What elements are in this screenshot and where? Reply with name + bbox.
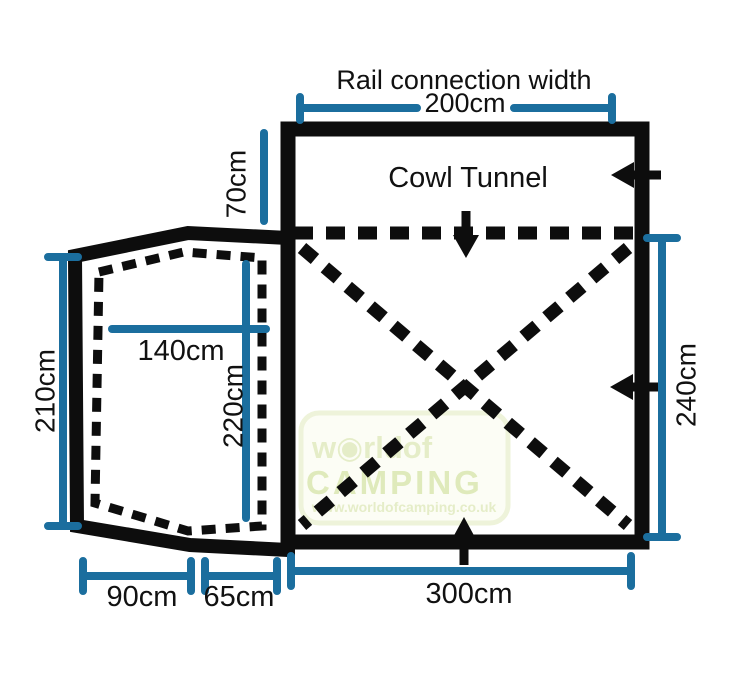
- annexe-base-width-label: 90cm: [107, 581, 178, 613]
- annexe-inner-width-label: 140cm: [137, 335, 224, 367]
- connector-width-label: 65cm: [204, 581, 275, 613]
- rail-connection-width-label: 200cm: [424, 88, 505, 118]
- tunnel-length-label: 70cm: [221, 150, 252, 218]
- annexe-side-height-label: 210cm: [30, 349, 61, 433]
- awning-floorplan-diagram: w◉rldof CAMPING www.worldofcamping.co.uk: [0, 0, 743, 682]
- floorplan-svg: w◉rldof CAMPING www.worldofcamping.co.uk: [0, 0, 743, 682]
- watermark-url: www.worldofcamping.co.uk: [311, 499, 497, 515]
- annexe-outline: [75, 233, 288, 550]
- cowl-tunnel-label: Cowl Tunnel: [388, 162, 548, 194]
- main-side-length-label: 240cm: [671, 343, 702, 427]
- annexe-inner-length-label: 220cm: [218, 364, 249, 448]
- main-base-width-label: 300cm: [425, 578, 512, 610]
- watermark-brand-main: CAMPING: [306, 464, 483, 501]
